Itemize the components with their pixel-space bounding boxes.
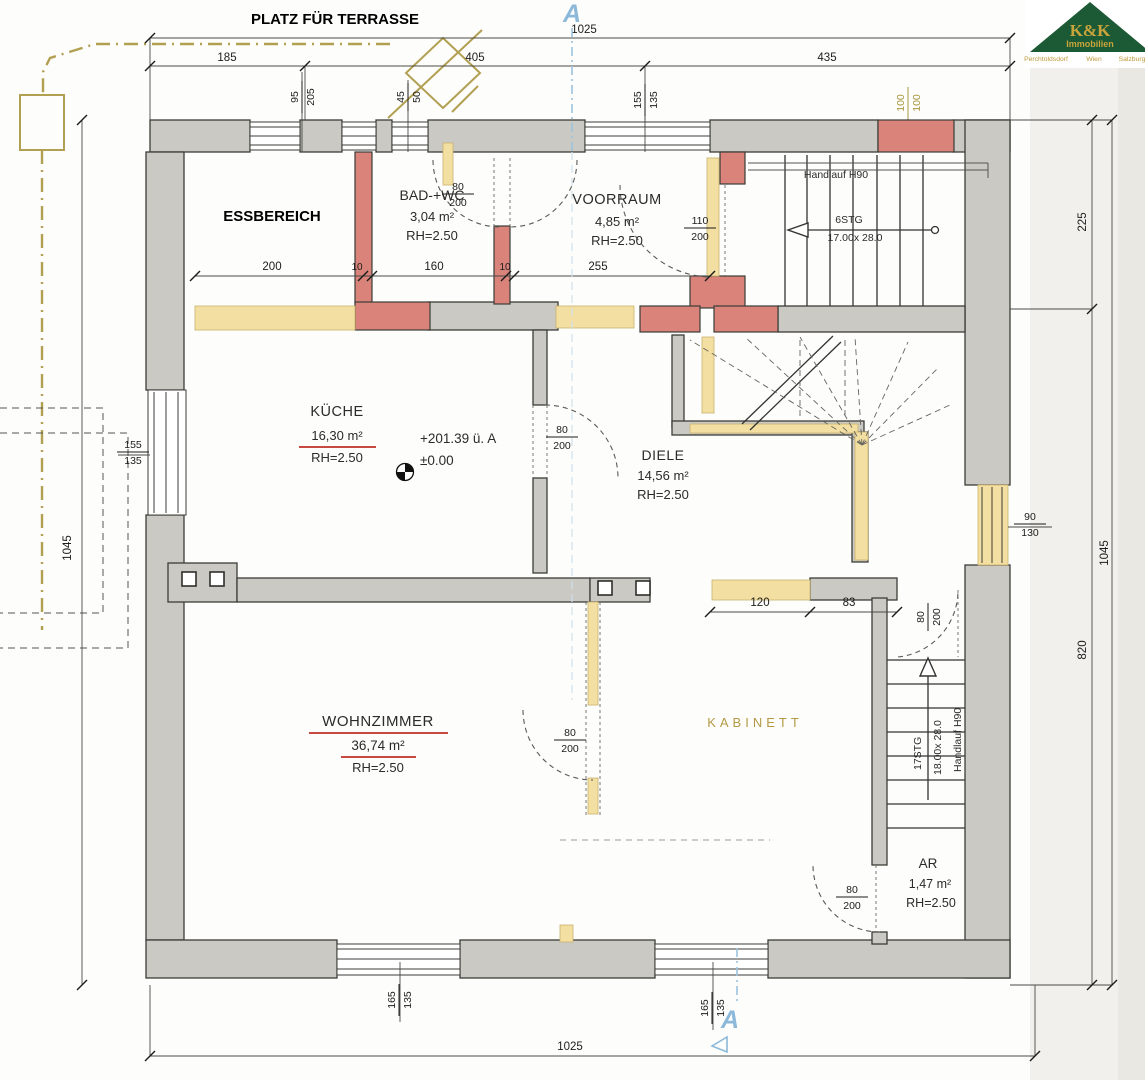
svg-text:130: 130 [1021, 527, 1039, 539]
svg-text:100: 100 [911, 94, 923, 112]
floor-plan-page: Handlauf H90 6STG 17.00x 28.0 17STG 18.0… [0, 0, 1145, 1080]
pillar-marker [182, 572, 196, 586]
room-kueche-area: 16,30 m² [311, 428, 363, 443]
svg-text:80: 80 [915, 611, 927, 623]
stair-steps-upper: 6STG [835, 214, 862, 226]
room-ar-rh: RH=2.50 [906, 896, 956, 910]
section-marker-top: A [562, 0, 581, 28]
chimney-size-100-100: 100100 [895, 87, 923, 119]
svg-text:135: 135 [124, 455, 142, 467]
dim-top-1: 185 [217, 52, 236, 64]
dim-inner-1: 200 [262, 261, 281, 273]
dim-kab-1: 120 [750, 597, 769, 609]
door-swing-wohnzimmer [523, 710, 593, 780]
logo: K&K Immobilien Perchtoldsdorf Wien Salzb… [1024, 0, 1145, 68]
svg-text:165: 165 [699, 999, 711, 1017]
room-ar-area: 1,47 m² [909, 877, 951, 891]
window-top-2 [342, 122, 376, 150]
stair-direction-arrow-icon [788, 223, 808, 237]
room-kueche-name: KÜCHE [310, 402, 363, 420]
room-bad-name: BAD-+WC [400, 187, 465, 203]
room-ar-name: AR [919, 856, 938, 871]
stair-tread-upper: 17.00x 28.0 [828, 232, 883, 244]
window-bottom-1 [337, 944, 460, 975]
door-swing-voorraum-entry [510, 160, 577, 227]
window-size-155-135: 155135 [632, 84, 660, 116]
room-voorraum-area: 4,85 m² [595, 214, 640, 229]
floor-plan-drawing: Handlauf H90 6STG 17.00x 28.0 17STG 18.0… [0, 0, 1145, 1080]
window-bottom-2 [655, 944, 768, 975]
dim-inner-5: 255 [588, 261, 607, 273]
logo-brand: K&K [1070, 21, 1111, 40]
window-size-left: 155135 [117, 439, 149, 467]
room-essbereich: ESSBEREICH [223, 208, 321, 225]
room-kueche-rh: RH=2.50 [311, 450, 363, 465]
dim-inner-2: 10 [351, 262, 363, 273]
section-arrow-icon [712, 1037, 727, 1052]
pillar-marker [598, 581, 612, 595]
svg-text:200: 200 [843, 900, 861, 912]
dim-inner-4: 10 [499, 262, 511, 273]
dim-right-upper: 225 [1077, 212, 1089, 231]
svg-text:200: 200 [931, 608, 943, 626]
logo-division: Immobilien [1066, 39, 1114, 49]
door-size-kueche: 80200 [546, 424, 578, 452]
dim-bottom-total: 1025 [557, 1041, 583, 1053]
svg-text:155: 155 [632, 91, 644, 109]
terrace-label: PLATZ FÜR TERRASSE [251, 11, 419, 28]
level-absolute: +201.39 ü. A [420, 431, 496, 446]
svg-text:50: 50 [411, 91, 423, 103]
room-bad-area: 3,04 m² [410, 209, 455, 224]
svg-text:135: 135 [402, 991, 414, 1009]
terrace-dashed-outline [0, 408, 128, 648]
dim-left-total: 1045 [62, 535, 74, 561]
door-size-ar: 80200 [836, 884, 868, 912]
room-diele-area: 14,56 m² [637, 468, 689, 483]
svg-text:80: 80 [846, 884, 858, 896]
level-marker-icon [397, 464, 414, 481]
svg-text:200: 200 [561, 743, 579, 755]
room-voorraum-rh: RH=2.50 [591, 233, 643, 248]
handrail-label-upper: Handlauf H90 [804, 169, 868, 181]
room-diele-rh: RH=2.50 [637, 487, 689, 502]
window-top-4 [585, 122, 710, 150]
window-left [148, 390, 186, 515]
logo-location-1: Perchtoldsdorf [1024, 56, 1068, 63]
stair-upper: Handlauf H90 6STG 17.00x 28.0 [748, 155, 988, 306]
svg-text:205: 205 [305, 88, 317, 106]
level-relative: ±0.00 [420, 453, 454, 468]
svg-text:45: 45 [395, 91, 407, 103]
window-top-1 [250, 122, 300, 150]
room-wohnzimmer-area: 36,74 m² [351, 738, 405, 753]
svg-text:200: 200 [553, 440, 571, 452]
dim-right-total: 1045 [1099, 540, 1111, 566]
dim-top-2: 405 [465, 52, 484, 64]
stair-steps-lower: 17STG [912, 737, 924, 770]
stair-direction-arrow-icon [920, 658, 936, 676]
window-top-3 [392, 122, 428, 150]
svg-text:135: 135 [648, 91, 660, 109]
window-size-95-205: 95205 [289, 81, 317, 113]
dim-inner-3: 160 [424, 261, 443, 273]
room-bad-rh: RH=2.50 [406, 228, 458, 243]
stair-tread-lower: 18.00x 28.0 [932, 720, 944, 775]
svg-text:80: 80 [556, 424, 568, 436]
pillar-marker [210, 572, 224, 586]
dim-kab-2: 83 [843, 597, 856, 609]
svg-text:165: 165 [386, 991, 398, 1009]
walls-existing [146, 120, 1010, 978]
dimension-lines [77, 33, 1117, 1061]
door-size-wohnzimmer: 80200 [554, 727, 586, 755]
door-size-stair: 80200 [915, 603, 943, 631]
logo-location-3: Salzburg [1119, 56, 1145, 63]
dim-right-lower: 820 [1077, 640, 1089, 659]
door-swing-ar [813, 865, 880, 932]
room-diele-name: DIELE [642, 447, 685, 463]
scan-shadow-edge [1118, 62, 1145, 1080]
room-voorraum-name: VOORRAUM [572, 192, 661, 208]
stair-lower: 17STG 18.00x 28.0 Handlauf H90 [887, 658, 965, 828]
svg-text:80: 80 [564, 727, 576, 739]
svg-text:110: 110 [692, 215, 709, 227]
room-wohnzimmer-name: WOHNZIMMER [322, 713, 434, 730]
svg-text:155: 155 [124, 439, 142, 451]
handrail-label-lower: Handlauf H90 [952, 708, 964, 772]
logo-location-2: Wien [1086, 56, 1102, 63]
room-wohnzimmer-rh: RH=2.50 [352, 760, 404, 775]
section-marker-bottom: A [720, 1006, 739, 1034]
dim-top-3: 435 [817, 52, 836, 64]
svg-text:90: 90 [1024, 511, 1036, 523]
svg-text:100: 100 [895, 94, 907, 112]
svg-text:95: 95 [289, 91, 301, 103]
svg-text:200: 200 [691, 231, 709, 243]
pillar-marker [636, 581, 650, 595]
room-kabinett-name: KABINETT [707, 715, 803, 730]
